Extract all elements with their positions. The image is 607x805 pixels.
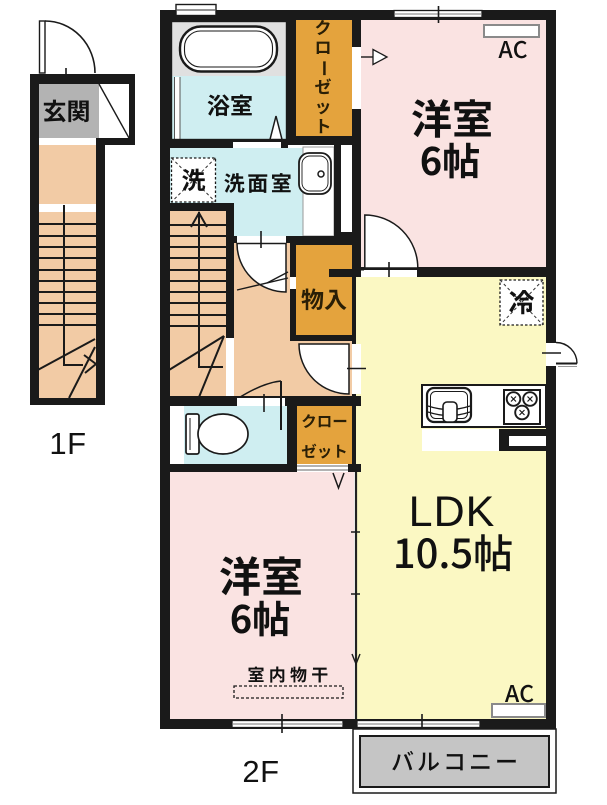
svg-text:2F: 2F — [242, 754, 279, 789]
svg-text:1F: 1F — [49, 426, 86, 461]
svg-text:LDK: LDK — [409, 488, 496, 536]
